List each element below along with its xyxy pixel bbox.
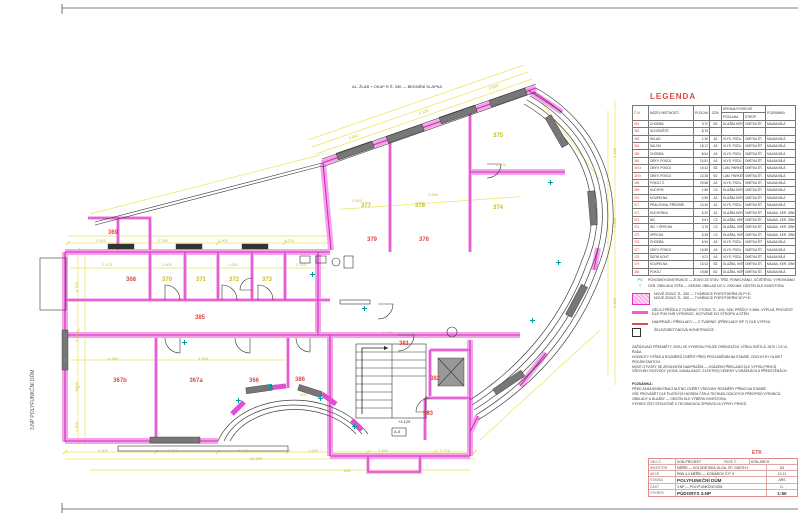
room-name: SKLAD — [649, 135, 694, 142]
room-ceiling-finish: OMÍTKA ŠT. — [744, 150, 766, 157]
table-row: 367a OBÝV. POKOJ 19,42 B2 LAM. PARKETY, … — [633, 165, 796, 172]
note-t: T OZN. OBKLADU STĚN — KERAM. OBKLAD DO V… — [632, 284, 798, 288]
room-name: OBÝV. POKOJ — [649, 157, 694, 164]
room-number: 366 — [633, 157, 649, 164]
room-number: 377 — [633, 246, 649, 253]
room-code: A3 — [710, 142, 722, 149]
general-notes: ZAŘIZOVACÍ PŘEDMĚTY JSOU VE VÝKRESU POUZ… — [632, 345, 798, 375]
col-header-note: POZNÁMKA — [766, 106, 796, 121]
room-note: MALBA, KER. OBKLAD — [766, 209, 796, 216]
room-number: 368 — [633, 179, 649, 186]
room-floor-finish: DLAŽBA KER. + SOKL — [722, 187, 744, 194]
room-area: 29,68 — [694, 179, 710, 186]
table-row: 365 CHODBA 8,04 A3 VLYS. PODL. LAK OMÍTK… — [633, 150, 796, 157]
room-area: 9,21 — [694, 253, 710, 260]
room-ceiling-finish: OMÍTKA ŠT. — [744, 268, 766, 275]
room-note: MALBA BÍLÁ — [766, 165, 796, 172]
room-area: 3,76 — [694, 224, 710, 231]
room-ceiling-finish: OMÍTKA ŠT. — [744, 261, 766, 268]
tb-stage-value: ARS — [766, 477, 797, 483]
tb-scale-value: 1:50 — [766, 490, 797, 496]
room-floor-finish: VLYS. PODL. LAK — [722, 157, 744, 164]
room-code: A3 — [710, 179, 722, 186]
tb-drawing-label: VÝKRES — [649, 490, 676, 496]
room-floor-finish: DLAŽBA KER. — [722, 209, 744, 216]
room-note: MALBA, KER. OBKLAD — [766, 231, 796, 238]
room-number: 361 — [633, 120, 649, 127]
room-ceiling-finish: OMÍTKA ŠT. — [744, 165, 766, 172]
room-number: 375 — [633, 231, 649, 238]
room-number: 364 — [633, 142, 649, 149]
tb-number-value: D. — [766, 484, 797, 489]
room-floor-finish: VLYS. PODL. LAK — [722, 202, 744, 209]
room-note: MALBA, KER. OBKLAD — [766, 261, 796, 268]
room-ceiling-finish: OMÍTKA ŠT. — [744, 135, 766, 142]
room-note: MALBA, KER. OBKLAD — [766, 224, 796, 231]
table-row: 374 WC + SPRCHA 3,76 C3 DLAŽBA, KER. OBK… — [633, 224, 796, 231]
room-code: C4 — [710, 187, 722, 194]
room-code: B2 — [710, 268, 722, 275]
room-note: MALBA BÍLÁ — [766, 268, 796, 275]
room-schedule-table: Č.M. NÁZEV MÍSTNOSTI PLOCHA M² OZN. ÚPRA… — [632, 105, 796, 276]
col-header-number: Č.M. — [633, 106, 649, 121]
tb-investor-label: INVESTOR — [649, 465, 676, 470]
tb-format-value: A3 — [766, 465, 797, 470]
room-name: SPRCHA — [649, 231, 694, 238]
room-floor-finish — [722, 128, 744, 135]
room-number: 367b — [633, 172, 649, 179]
poznamka-line: OBKLADY A DLAŽBY — ODSTÍN DLE VÝBĚRU INV… — [632, 397, 727, 401]
room-code: B2 — [710, 261, 722, 268]
room-ceiling-finish — [744, 128, 766, 135]
hatch-swatch — [632, 293, 650, 305]
table-row: 373 WC 5,61 C3 DLAŽBA, KER. OBKLAD V.200… — [633, 216, 796, 223]
tb-investor-value: MĚŘÍK — KOLODĚJSKÁ OLGA, ČP. 2487/9 H. — [676, 465, 766, 470]
room-code: A3 — [710, 194, 722, 201]
room-code: A3 — [710, 202, 722, 209]
room-number: 373 — [633, 216, 649, 223]
room-area: 24,81 — [694, 157, 710, 164]
room-ceiling-finish: OMÍTKA ŠT. — [744, 187, 766, 194]
room-note: MALBA BÍLÁ — [766, 142, 796, 149]
room-name: KOUPELNA — [649, 261, 694, 268]
room-note: MALBA BÍLÁ — [766, 253, 796, 260]
general-note-line: HODNOTY VÝŠEK A ROZMĚRŮ OVĚŘIT PŘED PROV… — [632, 355, 782, 364]
room-name: OBÝV. POKOJ — [649, 246, 694, 253]
room-code — [710, 128, 722, 135]
room-name: CHODBA — [649, 150, 694, 157]
room-ceiling-finish: OMÍTKA ŠT. — [744, 172, 766, 179]
room-floor-finish: DLAŽBA KER. — [722, 194, 744, 201]
room-note: MALBA, KER. OBKLAD — [766, 216, 796, 223]
col-header-code: OZN. — [710, 106, 722, 121]
room-area: 19,88 — [694, 268, 710, 275]
room-code: B2 — [710, 165, 722, 172]
room-ceiling-finish: OMÍTKA ŠT. — [744, 253, 766, 260]
tb-pare-label: PARÉ Č. — [723, 459, 750, 464]
room-code: A3 — [710, 246, 722, 253]
room-note: MALBA BÍLÁ — [766, 135, 796, 142]
paré-code: ETK — [752, 450, 762, 456]
red-line-swatch — [632, 323, 648, 325]
col-header-surfaces: ÚPRAVA POVRCHŮ — [722, 106, 766, 113]
note-pv: PV PŮVODNÍ KONSTRUKCE — ZDIVO ZE STÁV. T… — [632, 278, 798, 282]
tb-drawing-title: PŮDORYS 3.NP — [676, 490, 766, 496]
room-name: KUCHYŇ — [649, 187, 694, 194]
wall-legend-lintel-text: NADPRAŽÍ / PŘEKLADY — Z TVÁRNIC (PŘEKLAD… — [652, 320, 770, 324]
room-note — [766, 128, 796, 135]
room-floor-finish: DLAŽBA KER. — [722, 120, 744, 127]
room-floor-finish: LAM. PARKETY, MIRELON — [722, 165, 744, 172]
table-row: 361 CHODBA 9,70 B2 DLAŽBA KER. OMÍTKA ŠT… — [633, 120, 796, 127]
tb-obj-value: KON-PROJEKT — [676, 459, 723, 464]
table-row: 376 CHODBA 6,94 A3 VLYS. PODL. LAK OMÍTK… — [633, 239, 796, 246]
table-row: 378 ŠATNÍ KOUT 9,21 A3 VLYS. PODL. LAK O… — [633, 253, 796, 260]
poznamka-line: PŘED ZAHÁJENÍM PRACÍ NUTNO OVĚŘIT VŠECHN… — [632, 387, 767, 391]
room-floor-finish: VLYS. PODL. LAK — [722, 246, 744, 253]
room-note: MALBA BÍLÁ — [766, 172, 796, 179]
room-code: B2 — [710, 172, 722, 179]
tb-drawing-row: VÝKRES PŮDORYS 3.NP 1:50 — [649, 490, 797, 496]
room-ceiling-finish: OMÍTKA ŠT. — [744, 157, 766, 164]
room-name: POKOJ Č. — [649, 179, 694, 186]
room-code: A3 — [710, 209, 722, 216]
poznamka-line: VÝKRES ČÍST SPOLEČNĚ S TECHNICKOU ZPRÁVO… — [632, 402, 747, 406]
tb-pare-value: KON-ARCH — [750, 459, 797, 464]
room-floor-finish: DLAŽBA, KER. OBKLAD V.200 — [722, 224, 744, 231]
room-area: 4,59 — [694, 194, 710, 201]
note-t-text: OZN. OBKLADU STĚN — KERAM. OBKLAD DO V. … — [648, 284, 784, 288]
room-code: A3 — [710, 150, 722, 157]
table-row: 366 OBÝV. POKOJ 24,81 A3 VLYS. PODL. LAK… — [633, 157, 796, 164]
tb-stavba-value: POLYFUNKČNÍ DŮM — [676, 477, 766, 483]
square-swatch — [632, 328, 641, 337]
col-header-floor: PODLAHA — [722, 113, 744, 120]
room-name: WC — [649, 216, 694, 223]
dimension-lines — [63, 65, 615, 470]
col-header-area: PLOCHA M² — [694, 106, 710, 121]
room-name: KUCHYŇKA — [649, 209, 694, 216]
table-row: 380 POKOJ 19,88 B2 DLAŽBA, KER. OBKLAD V… — [633, 268, 796, 275]
walls-pink — [65, 88, 598, 472]
room-area: 6,94 — [694, 239, 710, 246]
tb-obj-label: OBJ. Č. — [649, 459, 676, 464]
room-code: C3 — [710, 216, 722, 223]
room-area: 15,03 — [694, 261, 710, 268]
col-header-ceiling: STROP — [744, 113, 766, 120]
room-code: A3 — [710, 253, 722, 260]
room-floor-finish: DLAŽBA, KER. OBKLAD V.200 — [722, 268, 744, 275]
room-name: PRACOVNA, PŘEDSÍŇ — [649, 202, 694, 209]
room-floor-finish: DLAŽBA, KER. OBKLAD V.200 — [722, 231, 744, 238]
room-code: C3 — [710, 231, 722, 238]
room-floor-finish: LAM. PARKETY, MIRELON — [722, 172, 744, 179]
tb-cast-value: 3.NP — POLYFUNKČNÍ DŮM — [676, 484, 766, 489]
room-ceiling-finish: OMÍTKA ŠT. — [744, 209, 766, 216]
room-floor-finish: DLAŽBA, KER. OBKLAD V.200 — [722, 216, 744, 223]
wall-legend-concrete-text: ŽELEZOBETONOVÁ KONSTRUKCE — [654, 328, 714, 332]
detail-lines — [40, 84, 536, 451]
room-floor-finish: VLYS. PODL. LAK — [722, 239, 744, 246]
room-name: CHODBA — [649, 120, 694, 127]
room-ceiling-finish: OMÍTKA ŠT. — [744, 231, 766, 238]
wall-legend-partition: DĚLICÍ PŘÍČKA Z TVÁRNIC YTONG TL. 100, S… — [632, 308, 798, 317]
room-floor-finish: VLYS. PODL. LAK — [722, 179, 744, 186]
note-pv-text: PŮVODNÍ KONSTRUKCE — ZDIVO ZE STÁV. TŘÍD… — [648, 278, 795, 282]
room-ceiling-finish: OMÍTKA ŠT. — [744, 216, 766, 223]
tb-stavba-label: STAVBA — [649, 477, 676, 483]
tb-stavba-row: STAVBA POLYFUNKČNÍ DŮM ARS — [649, 477, 797, 484]
table-row: 364 SALON 18,17 A3 VLYS. PODL. LAK OMÍTK… — [633, 142, 796, 149]
room-name: POKOJ — [649, 268, 694, 275]
room-number: 374 — [633, 224, 649, 231]
room-number: 363 — [633, 135, 649, 142]
room-number: 370 — [633, 194, 649, 201]
table-row: 370 KOUPELNA 4,59 A3 DLAŽBA KER. OMÍTKA … — [633, 194, 796, 201]
room-number: 367a — [633, 165, 649, 172]
table-row: 362 SCHODIŠTĚ 8,75 — [633, 128, 796, 135]
room-area: 13,40 — [694, 202, 710, 209]
note-pv-code: PV — [632, 278, 648, 282]
table-row: 377 OBÝV. POKOJ 15,85 A3 VLYS. PODL. LAK… — [633, 246, 796, 253]
poznamka-title: POZNÁMKA: — [632, 382, 653, 386]
tb-date-value: 10 11 — [766, 471, 797, 476]
room-note: MALBA BÍLÁ — [766, 202, 796, 209]
room-floor-finish: VLYS. PODL. LAK — [722, 253, 744, 260]
room-area: 15,85 — [694, 246, 710, 253]
room-number: 378 — [633, 253, 649, 260]
table-row: 379 KOUPELNA 15,03 B2 DLAŽBA, KER. OBKLA… — [633, 261, 796, 268]
room-floor-finish: DLAŽBA, KER. OBKLAD V.200 — [722, 261, 744, 268]
room-ceiling-finish: OMÍTKA ŠT. — [744, 194, 766, 201]
room-floor-finish: VLYS. PODL. LAK — [722, 142, 744, 149]
room-code: B2 — [710, 120, 722, 127]
room-number: 379 — [633, 261, 649, 268]
table-row: 363 SKLAD 1,30 A2 VLYS. PODL. LAK OMÍTKA… — [633, 135, 796, 142]
room-code: A3 — [710, 239, 722, 246]
room-ceiling-finish: OMÍTKA ŠT. — [744, 224, 766, 231]
room-note: MALBA BÍLÁ — [766, 150, 796, 157]
wall-legend-concrete: ŽELEZOBETONOVÁ KONSTRUKCE — [632, 328, 798, 337]
room-note: MALBA BÍLÁ — [766, 239, 796, 246]
room-number: 362 — [633, 128, 649, 135]
tb-cast-label: ČÁST — [649, 484, 676, 489]
staircase — [356, 344, 426, 418]
tb-akce-label: AKCE — [649, 471, 676, 476]
room-note: MALBA BÍLÁ — [766, 187, 796, 194]
room-name: SALON — [649, 142, 694, 149]
room-note: MALBA BÍLÁ — [766, 246, 796, 253]
legend-title: LEGENDA — [650, 92, 798, 101]
title-block: OBJ. Č. KON-PROJEKT PARÉ Č. KON-ARCH INV… — [648, 458, 798, 497]
room-name: SCHODIŠTĚ — [649, 128, 694, 135]
room-code: A3 — [710, 157, 722, 164]
room-ceiling-finish: OMÍTKA ŠT. — [744, 179, 766, 186]
drawing-sheet: 3.NP POLYFUNKČNÍ DŮM AL. ŽLAB + OKAP R.Š… — [0, 0, 800, 517]
room-area: 13,28 — [694, 172, 710, 179]
room-number: 372 — [633, 209, 649, 216]
room-name: KOUPELNA — [649, 194, 694, 201]
tb-akce-value: RNS 4.4 MĚŘÍK — KOMÁROV Č.P. 9 — [676, 471, 766, 476]
room-ceiling-finish: OMÍTKA ŠT. — [744, 142, 766, 149]
room-note: MALBA BÍLÁ — [766, 120, 796, 127]
table-row: 371 PRACOVNA, PŘEDSÍŇ 13,40 A3 VLYS. POD… — [633, 202, 796, 209]
room-area: 19,42 — [694, 165, 710, 172]
wall-legend-new-masonry: NOVÉ ZDIVO TL. 250 — TVÁRNICE POROTHERM … — [632, 292, 798, 305]
room-area: 8,04 — [694, 150, 710, 157]
room-area: 1,30 — [694, 135, 710, 142]
room-area: 1,85 — [694, 187, 710, 194]
general-note-line: ZAŘIZOVACÍ PŘEDMĚTY JSOU VE VÝKRESU POUZ… — [632, 345, 789, 354]
room-area: 9,70 — [694, 120, 710, 127]
room-name: WC + SPRCHA — [649, 224, 694, 231]
room-area: 8,75 — [694, 128, 710, 135]
room-number: 380 — [633, 268, 649, 275]
room-ceiling-finish: OMÍTKA ŠT. — [744, 246, 766, 253]
room-note: MALBA BÍLÁ — [766, 157, 796, 164]
legend-panel: LEGENDA Č.M. NÁZEV MÍSTNOSTI PLOCHA M² O… — [632, 92, 798, 407]
note-t-code: T — [632, 284, 648, 288]
magenta-line-swatch — [632, 311, 648, 314]
room-note: MALBA BÍLÁ — [766, 194, 796, 201]
poznamka-line: VŠE PROVÁDĚT DLE PLATNÝCH NOREM ČSN A TE… — [632, 392, 781, 396]
table-row: 367b OBÝV. POKOJ 13,28 B2 LAM. PARKETY, … — [633, 172, 796, 179]
room-ceiling-finish: OMÍTKA ŠT. — [744, 239, 766, 246]
room-ceiling-finish: OMÍTKA ŠT. — [744, 120, 766, 127]
room-number: 369 — [633, 187, 649, 194]
wall-legend-lintel: NADPRAŽÍ / PŘEKLADY — Z TVÁRNIC (PŘEKLAD… — [632, 320, 798, 325]
col-header-name: NÁZEV MÍSTNOSTI — [649, 106, 694, 121]
room-number: 365 — [633, 150, 649, 157]
room-code: A2 — [710, 135, 722, 142]
wall-legend-line2: NOVÉ ZDIVO TL. 300 — TVÁRNICE POROTHERM … — [654, 296, 750, 300]
room-area: 6,20 — [694, 209, 710, 216]
table-row: 375 SPRCHA 5,35 C3 DLAŽBA, KER. OBKLAD V… — [633, 231, 796, 238]
room-code: C3 — [710, 224, 722, 231]
room-note: MALBA BÍLÁ — [766, 179, 796, 186]
table-row: 369 KUCHYŇ 1,85 C4 DLAŽBA KER. + SOKL OM… — [633, 187, 796, 194]
general-note-line: VŠECHNY ROZVODY (VODA, KANALIZACE, ELEKT… — [632, 369, 787, 373]
room-name: ŠATNÍ KOUT — [649, 253, 694, 260]
room-name: OBÝV. POKOJ — [649, 165, 694, 172]
room-area: 5,35 — [694, 231, 710, 238]
table-row: 368 POKOJ Č. 29,68 A3 VLYS. PODL. LAK OM… — [633, 179, 796, 186]
room-ceiling-finish: OMÍTKA ŠT. — [744, 202, 766, 209]
general-note-line: NOVÉ OTVORY SE ZESÍLENÝM NADPRAŽÍM — OSA… — [632, 365, 777, 369]
table-row: 372 KUCHYŇKA 6,20 A3 DLAŽBA KER. OMÍTKA … — [633, 209, 796, 216]
room-name: OBÝV. POKOJ — [649, 172, 694, 179]
room-number: 376 — [633, 239, 649, 246]
wall-legend-partition-text: DĚLICÍ PŘÍČKA Z TVÁRNIC YTONG TL. 100, S… — [652, 308, 798, 317]
room-area: 5,61 — [694, 216, 710, 223]
room-floor-finish: VLYS. PODL. LAK — [722, 150, 744, 157]
room-area: 18,17 — [694, 142, 710, 149]
room-name: CHODBA — [649, 239, 694, 246]
curved-facade-east — [470, 88, 613, 420]
room-floor-finish: VLYS. PODL. LAK — [722, 135, 744, 142]
poznamka-notes: POZNÁMKA: PŘED ZAHÁJENÍM PRACÍ NUTNO OVĚ… — [632, 382, 798, 407]
room-number: 371 — [633, 202, 649, 209]
